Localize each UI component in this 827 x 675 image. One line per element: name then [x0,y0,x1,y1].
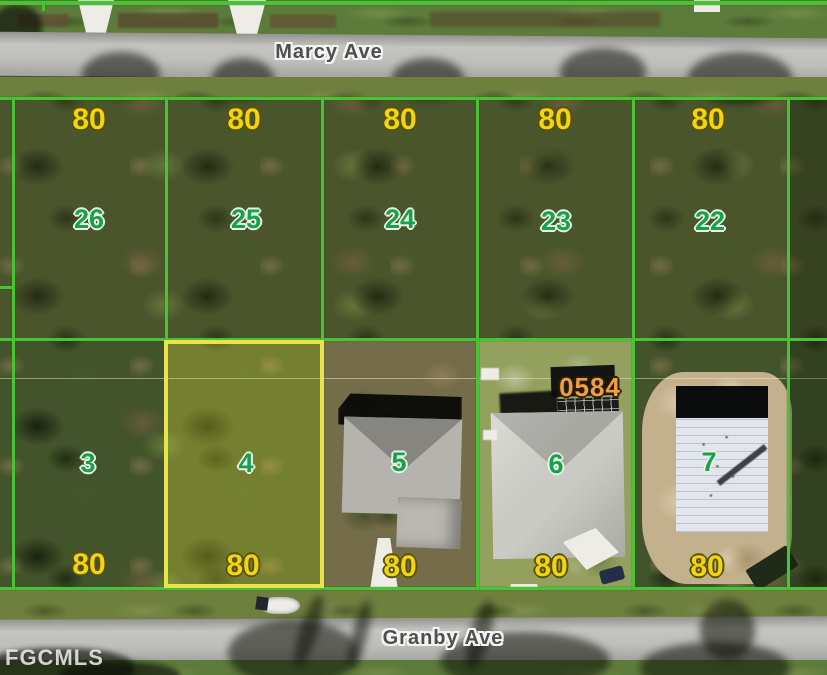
lot-number: 26 [74,206,104,233]
lot-frontage-label: 80 [690,552,723,582]
lot-frontage-label: 80 [227,105,260,135]
lot-line-row-bottom [0,587,827,590]
lot-number: 4 [238,450,253,477]
lot-line-stub [42,1,45,11]
parcel-annotation: 0584 [559,374,621,400]
lot-line-row-middle [0,338,827,341]
lot-frontage-label: 80 [534,552,567,582]
lot-line-vertical [787,97,790,590]
south-verge-marcy [0,77,827,98]
lot-line-vertical [632,97,635,590]
lot6-ac-pad [481,368,499,380]
lot-line-vertical [12,97,15,590]
dirt-bed [430,12,660,27]
lot-frontage-label: 80 [226,551,259,581]
dirt-bed [270,15,336,28]
lot-number: 23 [541,208,571,235]
street-name-marcy: Marcy Ave [275,42,383,62]
lot-number: 5 [391,449,406,476]
lot-frontage-label: 80 [72,550,105,580]
lot-frontage-label: 80 [383,105,416,135]
tree-shadow [700,600,755,660]
lot-line-vertical [476,97,479,590]
lot-number: 25 [231,206,261,233]
lot-number: 24 [385,206,415,233]
lot-number: 3 [80,450,95,477]
lot-number: 7 [701,449,716,476]
faint-survey-line [0,378,827,379]
lot5-roof-wing [396,497,462,549]
lot-frontage-label: 80 [72,105,105,135]
street-name-granby: Granby Ave [383,628,504,648]
boat-bow-cover [255,596,269,611]
lot-frontage-label: 80 [691,105,724,135]
lot-line-row-top [0,97,827,100]
lot-frontage-label: 80 [538,105,571,135]
lot-number: 6 [548,451,563,478]
aerial-plat-map: 80 80 80 80 80 26 25 24 23 22 3 4 5 6 7 … [0,0,827,675]
dirt-bed [118,13,218,28]
lot-frontage-label: 80 [383,552,416,582]
lot-number: 22 [695,208,725,235]
lot7-roof-shadow [676,386,768,418]
lot6-ac-pad [483,430,497,440]
lot-line-top-edge [0,1,827,5]
tree-strip-east [790,98,827,590]
mls-watermark: FGCMLS [5,645,104,671]
